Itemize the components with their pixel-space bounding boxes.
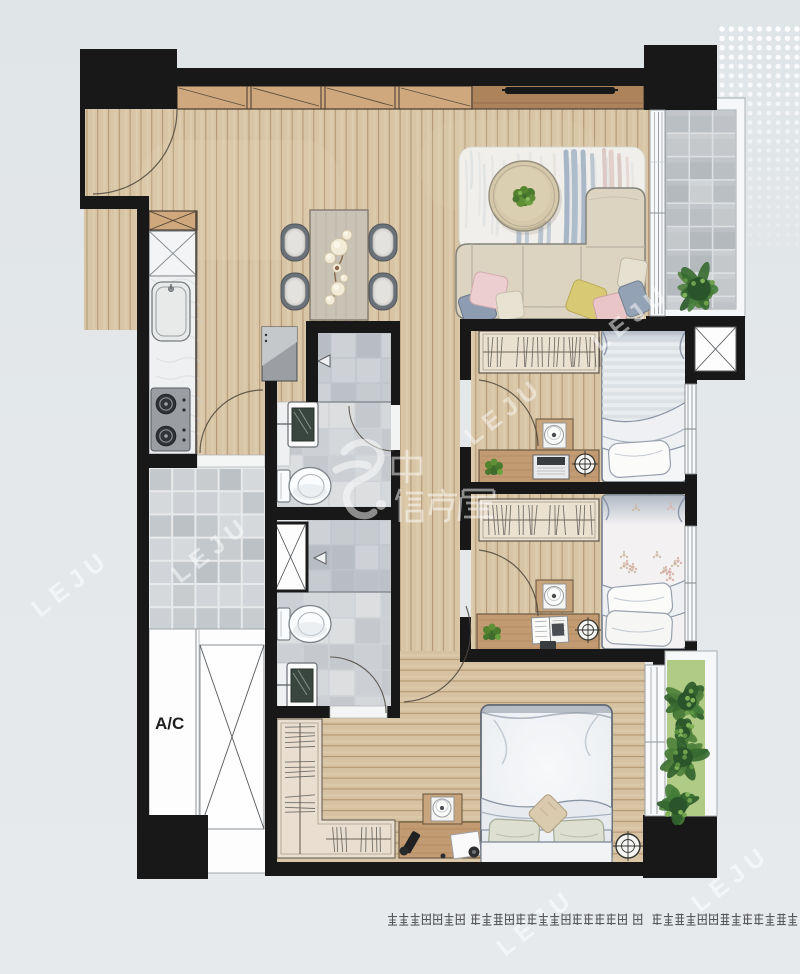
svg-text:A/C: A/C (155, 714, 184, 733)
